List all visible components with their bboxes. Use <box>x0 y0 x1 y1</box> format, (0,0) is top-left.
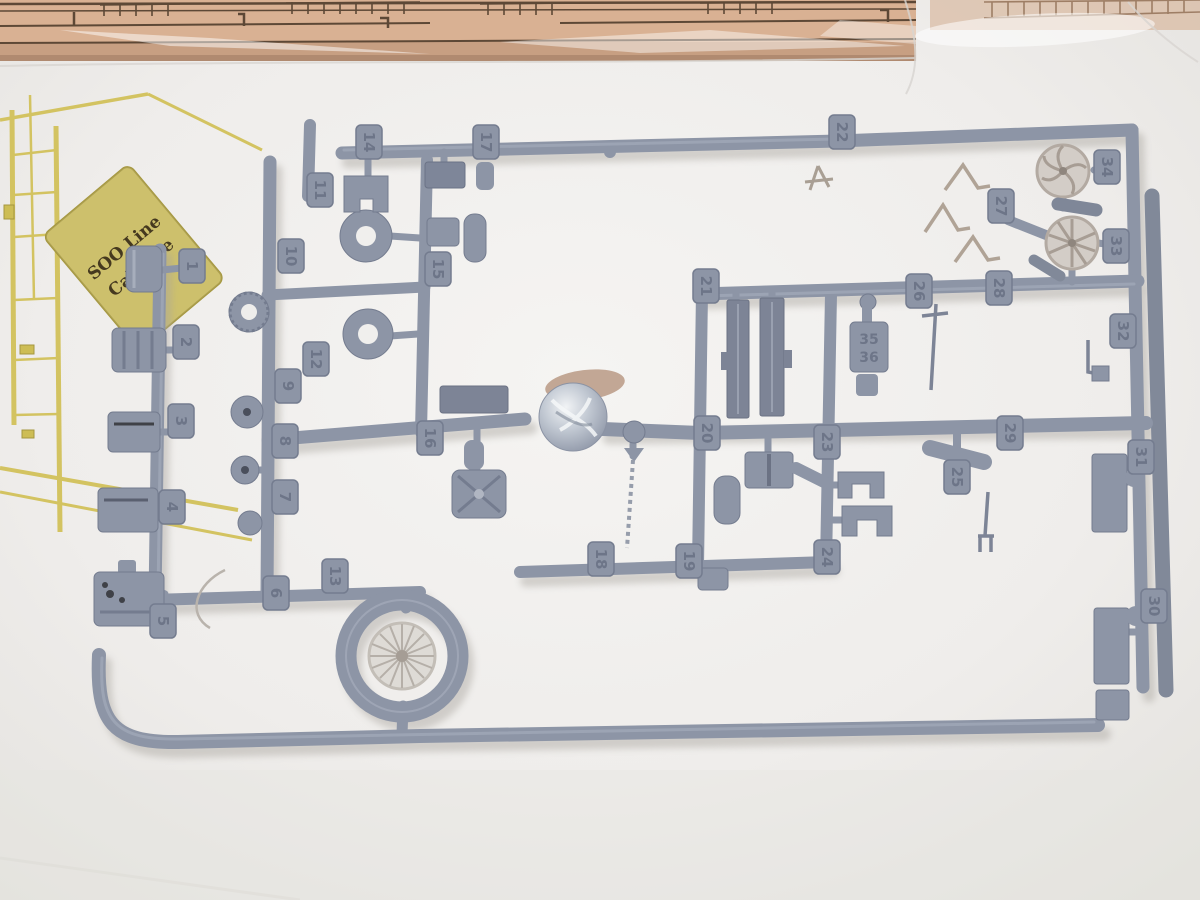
part-tag-25: 25 <box>944 460 970 494</box>
part-tag-30: 30 <box>1141 589 1167 623</box>
flat-bar-part <box>440 386 508 413</box>
part-tag-22: 22 <box>829 115 855 149</box>
part-tag-7: 7 <box>272 480 298 514</box>
part-tag-23: 23 <box>814 425 840 459</box>
part-tag-number-14: 14 <box>360 132 378 153</box>
part-tag-12: 12 <box>303 342 329 376</box>
part-tag-4: 4 <box>159 490 185 524</box>
part-tag-14: 14 <box>356 125 382 159</box>
part-tag-33: 33 <box>1103 229 1129 263</box>
part-tag-number-30: 30 <box>1145 596 1163 617</box>
molded-number-35: 35 <box>859 332 878 348</box>
part-tag-29: 29 <box>997 416 1023 450</box>
straight-spoke-wheel <box>1046 217 1098 269</box>
part-tag-26: 26 <box>906 274 932 308</box>
part-tag-number-22: 22 <box>833 122 851 143</box>
part-tag-number-1: 1 <box>183 261 201 271</box>
part-tag-number-8: 8 <box>276 436 294 446</box>
part-tag-24: 24 <box>814 540 840 574</box>
part-tag-11: 11 <box>307 173 333 207</box>
part-tag-2: 2 <box>173 325 199 359</box>
part-tag-number-18: 18 <box>592 549 610 570</box>
part-tag-13: 13 <box>322 559 348 593</box>
part-tag-number-7: 7 <box>276 492 294 502</box>
part-tag-21: 21 <box>693 269 719 303</box>
part-tag-1: 1 <box>179 249 205 283</box>
curved-spoke-wheel <box>1037 145 1089 197</box>
part-tag-number-10: 10 <box>282 246 300 267</box>
part-tag-number-19: 19 <box>680 551 698 572</box>
part-tag-number-32: 32 <box>1114 321 1132 342</box>
foreground-surface <box>0 770 1200 900</box>
photo-canvas: SOO Line Caboose <box>0 0 1200 900</box>
part-tag-18: 18 <box>588 542 614 576</box>
part-tag-20: 20 <box>694 416 720 450</box>
part-tag-number-12: 12 <box>307 349 325 370</box>
part-tag-number-29: 29 <box>1001 423 1019 444</box>
part-tag-17: 17 <box>473 125 499 159</box>
photo-of-model-kit-sprue: SOO Line Caboose <box>0 0 1200 900</box>
part-tag-number-3: 3 <box>172 416 190 426</box>
part-tag-9: 9 <box>275 369 301 403</box>
part-tag-34: 34 <box>1094 150 1120 184</box>
part-tag-number-27: 27 <box>992 196 1010 217</box>
part-tag-number-28: 28 <box>990 278 1008 299</box>
part-tag-19: 19 <box>676 544 702 578</box>
part-tag-number-17: 17 <box>477 132 495 153</box>
part-tag-number-11: 11 <box>311 180 329 201</box>
part-tag-5: 5 <box>150 604 176 638</box>
part-tag-15: 15 <box>425 252 451 286</box>
part-tag-31: 31 <box>1128 440 1154 474</box>
part-tag-number-24: 24 <box>818 547 836 568</box>
part-tag-number-20: 20 <box>698 423 716 444</box>
part-tag-number-9: 9 <box>279 381 297 391</box>
part-tag-16: 16 <box>417 421 443 455</box>
part-tag-number-4: 4 <box>163 502 181 512</box>
part-tag-32: 32 <box>1110 314 1136 348</box>
part-tag-8: 8 <box>272 424 298 458</box>
part-tag-27: 27 <box>988 189 1014 223</box>
part-tag-number-13: 13 <box>326 566 344 587</box>
part-tag-number-16: 16 <box>421 428 439 449</box>
part-tag-10: 10 <box>278 239 304 273</box>
part-tag-number-25: 25 <box>948 467 966 488</box>
part-tag-number-31: 31 <box>1132 447 1150 468</box>
part-tag-3: 3 <box>168 404 194 438</box>
part-tag-number-21: 21 <box>697 276 715 297</box>
part-tag-number-34: 34 <box>1098 157 1116 178</box>
part-tag-number-26: 26 <box>910 281 928 302</box>
part-tag-number-23: 23 <box>818 432 836 453</box>
part-tag-number-6: 6 <box>267 588 285 598</box>
part-tag-number-5: 5 <box>154 616 172 626</box>
part-tag-number-2: 2 <box>177 337 195 347</box>
part-tag-number-15: 15 <box>429 259 447 280</box>
part-tag-28: 28 <box>986 271 1012 305</box>
part-tag-6: 6 <box>263 576 289 610</box>
part-tag-number-33: 33 <box>1107 236 1125 257</box>
molded-number-36: 36 <box>859 350 878 366</box>
